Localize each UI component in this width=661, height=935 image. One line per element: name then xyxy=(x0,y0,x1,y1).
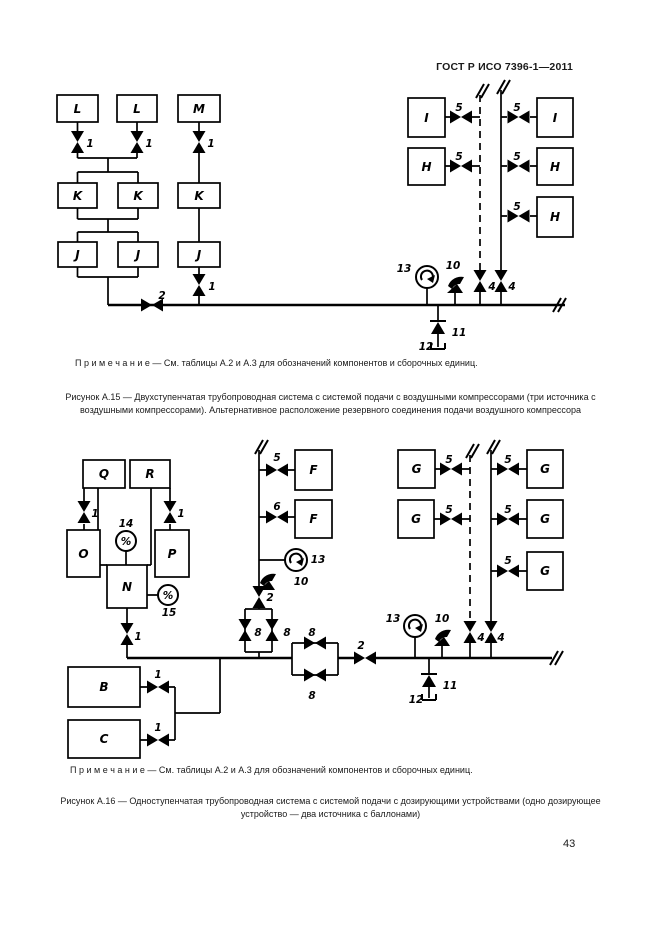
valve-number: 5 xyxy=(273,452,280,464)
box-label: C xyxy=(100,732,109,746)
shutoff-valve-icon xyxy=(71,131,84,153)
shutoff-valve-icon xyxy=(78,501,91,523)
valve-number: 1 xyxy=(208,281,215,293)
valve-number: 8 xyxy=(254,627,261,639)
box-label: J xyxy=(73,248,80,262)
component-number: 12 xyxy=(419,341,434,353)
box-label: H xyxy=(550,210,560,224)
analyzer-glyph: % xyxy=(121,536,132,548)
valve-number: 5 xyxy=(513,151,520,163)
box-label: J xyxy=(195,248,202,262)
valve-number: 5 xyxy=(455,151,462,163)
box-label: R xyxy=(145,467,154,481)
box-label: B xyxy=(99,680,108,694)
valve-number: 8 xyxy=(308,690,315,702)
box-label: N xyxy=(122,580,132,594)
component-number: 12 xyxy=(409,694,424,706)
valve-number: 1 xyxy=(86,138,93,150)
figure-a15-caption: Рисунок А.15 — Двухступенчатая трубопров… xyxy=(48,391,613,417)
pipe-break-icon xyxy=(255,440,268,454)
valve-number: 5 xyxy=(445,504,452,516)
safety-valve-icon xyxy=(447,277,464,293)
box-label: L xyxy=(133,102,141,116)
valve-number: 5 xyxy=(504,504,511,516)
component-number: 13 xyxy=(386,613,401,625)
shutoff-valve-icon xyxy=(147,681,169,694)
valve-number: 2 xyxy=(266,592,273,604)
box-label: M xyxy=(193,102,205,116)
box-label: H xyxy=(421,160,431,174)
box-label: I xyxy=(424,111,429,125)
valve-number: 5 xyxy=(455,102,462,114)
component-number: 10 xyxy=(294,576,309,588)
valve-number: 6 xyxy=(273,501,280,513)
riser-valve-icon xyxy=(495,270,508,292)
valve-number: 5 xyxy=(504,454,511,466)
box-label: F xyxy=(309,512,318,526)
box-label: P xyxy=(168,547,177,561)
box-label: L xyxy=(74,102,82,116)
pressure-gauge-icon xyxy=(416,266,438,288)
valve-number: 5 xyxy=(504,555,511,567)
pressure-gauge-icon xyxy=(404,615,426,637)
box-label: G xyxy=(540,462,550,476)
valve-number: 1 xyxy=(134,631,141,643)
figure-a15-diagram: L L M K K K J J J I H I H H xyxy=(57,80,573,353)
pipe-break-icon xyxy=(466,444,479,458)
cylinder-valve-icon xyxy=(266,464,288,477)
valve-number: 1 xyxy=(91,508,98,520)
component-number: 14 xyxy=(119,518,134,530)
figure-a15-note: П р и м е ч а н и е — См. таблицы А.2 и … xyxy=(75,358,478,368)
box-label: G xyxy=(411,512,421,526)
shutoff-valve-icon xyxy=(131,131,144,153)
page-number: 43 xyxy=(563,838,575,850)
riser-valve-icon xyxy=(485,621,498,643)
box-label: G xyxy=(540,564,550,578)
valve-number: 5 xyxy=(513,102,520,114)
valve-number: 5 xyxy=(513,201,520,213)
valve-number: 4 xyxy=(476,632,484,644)
pipe-break-icon xyxy=(487,440,500,454)
component-number: 13 xyxy=(311,554,326,566)
component-number: 15 xyxy=(162,607,177,619)
shutoff-valve-icon xyxy=(193,131,206,153)
analyzer-glyph: % xyxy=(163,590,174,602)
component-number: 11 xyxy=(443,680,458,692)
shutoff-valve-icon xyxy=(193,274,206,296)
valve-number: 1 xyxy=(145,138,152,150)
box-label: O xyxy=(78,547,88,561)
shutoff-valve-icon xyxy=(121,623,134,645)
valve-number: 4 xyxy=(487,281,495,293)
pipe-break-icon xyxy=(497,80,510,94)
check-valve-icon xyxy=(430,321,446,334)
shutoff-valve-icon xyxy=(164,501,177,523)
valve-number: 1 xyxy=(154,669,161,681)
component-number: 10 xyxy=(435,613,450,625)
component-number: 10 xyxy=(446,260,461,272)
valve-number: 8 xyxy=(308,627,315,639)
valve-number: 2 xyxy=(357,640,364,652)
check-valve-icon xyxy=(421,674,437,687)
riser-valve-icon xyxy=(474,270,487,292)
component-number: 11 xyxy=(452,327,467,339)
pressure-gauge-icon xyxy=(285,549,307,571)
valve-number: 1 xyxy=(207,138,214,150)
valve-number: 5 xyxy=(445,454,452,466)
valve-number: 8 xyxy=(283,627,290,639)
valve-number: 1 xyxy=(154,722,161,734)
parallel-valve-icon xyxy=(239,619,252,641)
valve-number: 4 xyxy=(507,281,515,293)
valve-number: 2 xyxy=(158,290,165,302)
safety-valve-icon xyxy=(434,630,451,646)
pipe-break-icon xyxy=(476,84,489,98)
box-label: I xyxy=(553,111,558,125)
riser-valve-icon xyxy=(464,621,477,643)
shutoff-valve-icon xyxy=(147,734,169,747)
figure-a16-caption: Рисунок А.16 — Одноступенчатая трубопров… xyxy=(48,795,613,821)
box-label: Q xyxy=(99,467,109,481)
box-label: J xyxy=(134,248,141,262)
box-label: F xyxy=(309,463,318,477)
valve-number: 1 xyxy=(177,508,184,520)
box-label: G xyxy=(540,512,550,526)
parallel-valve-icon xyxy=(266,619,279,641)
valve-number: 4 xyxy=(496,632,504,644)
parallel-valve-icon xyxy=(304,669,326,682)
box-label: H xyxy=(550,160,560,174)
figure-a16-note: П р и м е ч а н и е — См. таблицы А.2 и … xyxy=(70,765,473,775)
line-valve-icon xyxy=(354,652,376,665)
figure-a16-diagram: Q R O P N F F B C G G G G G xyxy=(67,440,563,758)
component-number: 13 xyxy=(397,263,412,275)
box-label: G xyxy=(412,462,422,476)
